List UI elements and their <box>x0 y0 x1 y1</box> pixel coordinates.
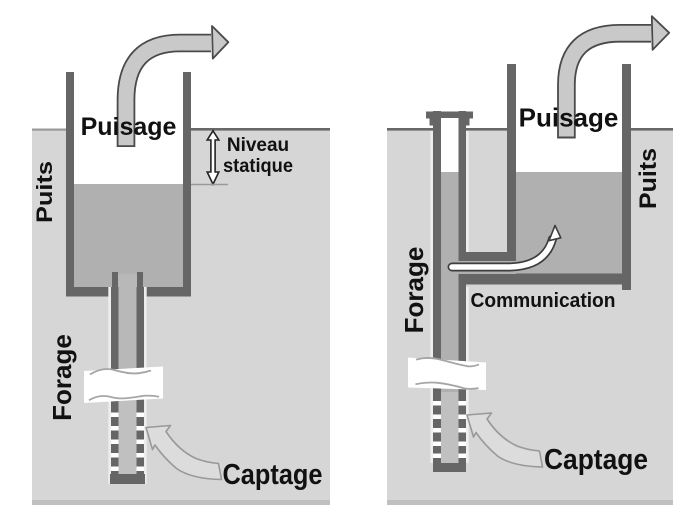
svg-text:Puits: Puits <box>32 161 57 223</box>
svg-text:Captage: Captage <box>544 444 648 476</box>
svg-text:Puits: Puits <box>635 148 662 209</box>
svg-text:Communication: Communication <box>471 290 616 312</box>
svg-text:Niveau: Niveau <box>227 135 289 156</box>
svg-text:Captage: Captage <box>223 459 323 491</box>
svg-text:Forage: Forage <box>47 334 77 421</box>
svg-text:statique: statique <box>223 156 293 177</box>
svg-text:Puisage: Puisage <box>519 103 619 133</box>
svg-text:Forage: Forage <box>399 247 429 334</box>
svg-text:Puisage: Puisage <box>81 113 177 141</box>
